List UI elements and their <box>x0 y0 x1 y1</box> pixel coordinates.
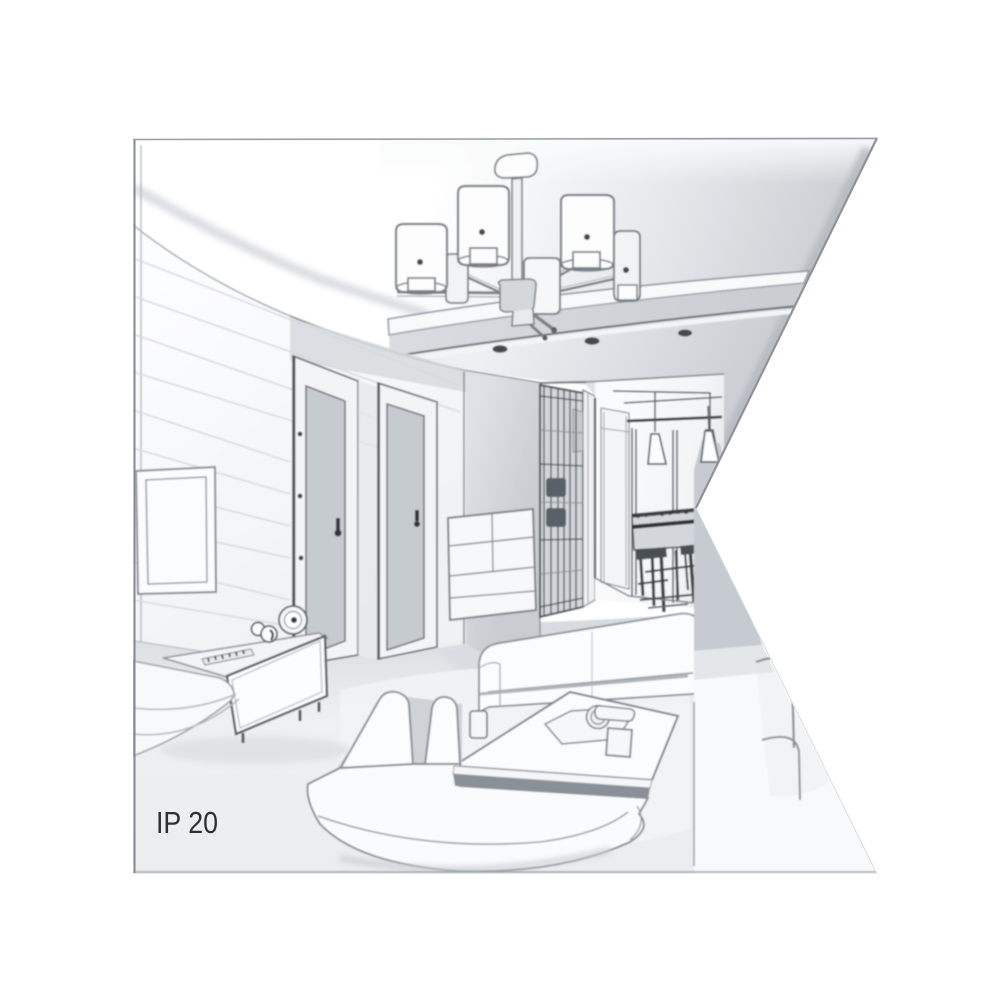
svg-text:IP 20: IP 20 <box>156 805 218 840</box>
